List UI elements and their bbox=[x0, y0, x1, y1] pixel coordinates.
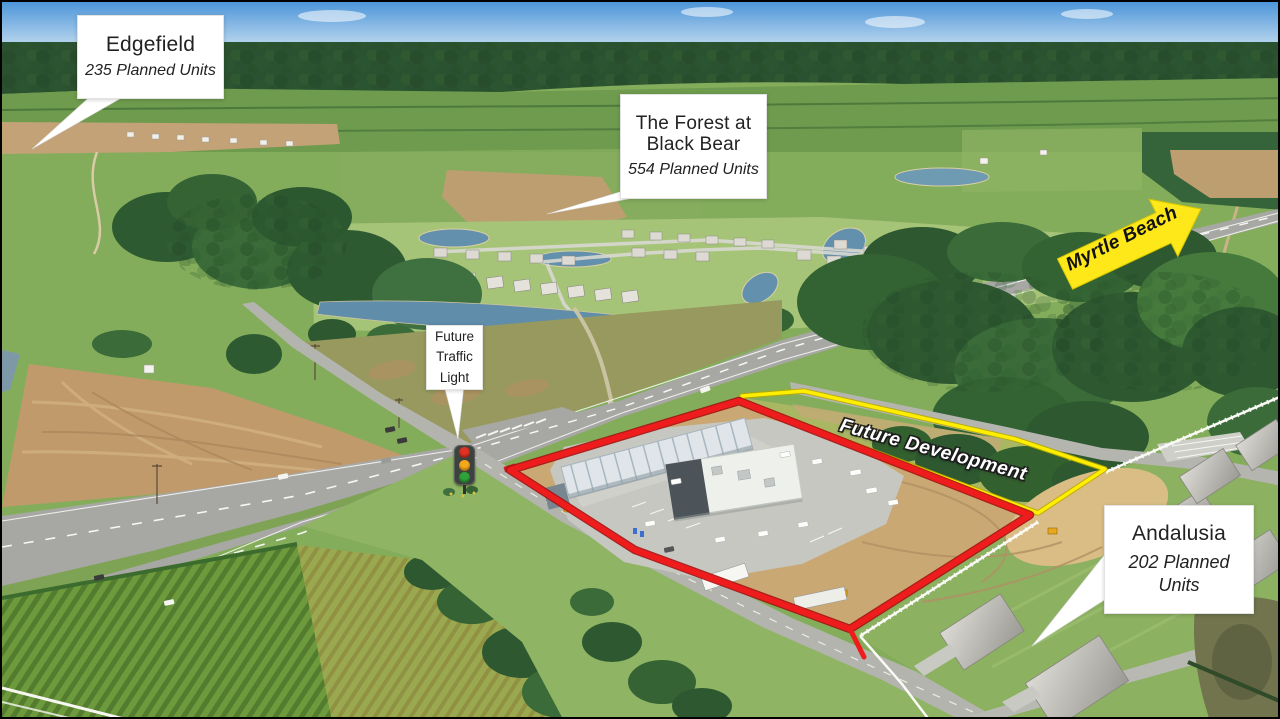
traffic-light-green-lamp bbox=[459, 472, 470, 483]
traffic-light-icon bbox=[454, 445, 475, 485]
edgefield-callout: Edgefield 235 Planned Units bbox=[77, 15, 224, 99]
edgefield-callout-tail bbox=[32, 93, 130, 149]
edgefield-title: Edgefield bbox=[106, 33, 195, 57]
traffic-light-red-lamp bbox=[459, 447, 470, 458]
andalusia-callout-tail bbox=[1032, 553, 1106, 646]
traffic-light-callout-tail bbox=[444, 385, 464, 439]
forest-title-line2: Black Bear bbox=[647, 134, 741, 155]
andalusia-units-line1: 202 Planned bbox=[1128, 551, 1229, 574]
forest-black-bear-callout: The Forest at Black Bear 554 Planned Uni… bbox=[620, 94, 767, 199]
traffic-light-label-line2: Traffic bbox=[436, 347, 473, 367]
traffic-light-label-line3: Light bbox=[440, 368, 469, 388]
traffic-light-amber-lamp bbox=[459, 460, 470, 471]
traffic-light-label-line1: Future bbox=[435, 327, 474, 347]
forest-title-line1: The Forest at bbox=[636, 113, 752, 134]
andalusia-units-line2: Units bbox=[1158, 574, 1199, 597]
aerial-site-flyer: Edgefield 235 Planned Units The Forest a… bbox=[0, 0, 1280, 719]
forest-units: 554 Planned Units bbox=[628, 160, 759, 180]
andalusia-title: Andalusia bbox=[1132, 522, 1226, 546]
edgefield-units: 235 Planned Units bbox=[85, 61, 216, 81]
future-traffic-light-callout: Future Traffic Light bbox=[426, 325, 483, 390]
andalusia-callout: Andalusia 202 Planned Units bbox=[1104, 505, 1254, 614]
